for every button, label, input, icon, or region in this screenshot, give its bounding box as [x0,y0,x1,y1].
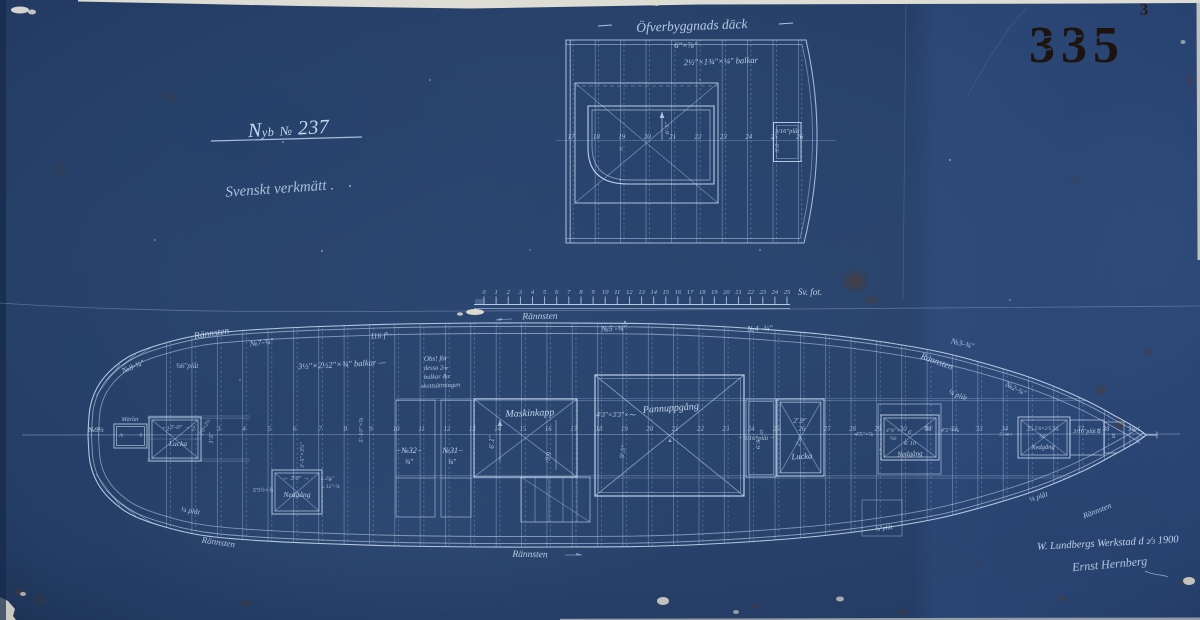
svg-text:Rännsten: Rännsten [511,550,548,561]
svg-text:22: 22 [695,133,703,141]
svg-text:3′-5″×3½″: 3′-5″×3½″ [299,442,306,469]
svg-text:¾6: ¾6 [890,436,897,442]
svg-text:20: 20 [646,426,653,433]
svg-text:Nedgång: Nedgång [896,450,923,459]
svg-text:3′.0: 3′.0 [775,144,781,154]
svg-text:¾″: ¾″ [405,458,413,466]
svg-text:17: 17 [568,133,576,141]
svg-text:23: 23 [720,133,728,141]
svg-text:19: 19 [621,426,628,433]
svg-text:25: 25 [784,289,791,296]
svg-text:▲: ▲ [667,438,673,444]
svg-text:6′-5″: 6′-5″ [664,121,671,134]
svg-text:6″×⅞″: 6″×⅞″ [674,40,698,50]
svg-text:−№32−: −№32− [396,446,422,455]
svg-text:18: 18 [699,289,706,296]
svg-text:116 fº−: 116 fº− [370,330,394,340]
svg-text:6′.10: 6′.10 [904,441,916,447]
svg-text:2′.9″: 2′.9″ [793,417,806,425]
svg-text:3: 3 [1140,0,1149,19]
svg-text:16: 16 [545,426,552,433]
svg-text:⇅6″: ⇅6″ [923,425,933,432]
svg-text:12: 12 [444,426,451,433]
svg-text:27: 27 [824,426,831,433]
svg-text:⇅: ⇅ [1110,433,1115,440]
svg-text:5: 5 [268,426,272,433]
svg-text:№5 -¾″: №5 -¾″ [600,324,628,334]
svg-text:33: 33 [975,426,983,433]
svg-text:3: 3 [216,426,221,433]
svg-text:balkar &c: balkar &c [424,373,451,381]
svg-text:4′¾″×: 4′¾″× [886,427,900,434]
svg-text:5′-10″×⅞: 5′-10″×⅞ [358,417,365,442]
svg-text:18: 18 [593,133,601,141]
svg-text:4′3″×3′3″×⁓: 4′3″×3′3″×⁓ [596,411,636,419]
svg-text:14: 14 [650,289,657,296]
svg-text:12: 12 [626,289,633,296]
svg-text:¾6″plåt: ¾6″plåt [176,362,200,370]
svg-text:skottsättningen: skottsättningen [421,382,461,390]
svg-text:◊: ◊ [140,432,143,439]
svg-text:9: 9 [369,426,373,433]
svg-text:dessa 2ne: dessa 2ne [424,364,449,372]
svg-text:4′5″×⅞: 4′5″×⅞ [941,427,960,434]
svg-text:6′: 6′ [908,430,913,436]
svg-text:− 3/16″plåt −: − 3/16″plåt − [738,435,774,442]
svg-text:6: 6 [293,426,297,433]
svg-text:← 3′0″ →: ← 3′0″ → [283,475,310,482]
svg-text:17: 17 [687,289,694,296]
svg-text:3′.6″: 3′.6″ [209,432,215,445]
svg-text:→12″-⅞: →12″-⅞ [320,484,339,490]
svg-text:2: 2 [192,426,196,433]
svg-text:19: 19 [618,133,626,141]
svg-text:¾6″: ¾6″ [1039,435,1048,440]
svg-text:¾″: ¾″ [448,458,456,466]
svg-text:5′5½×¾: 5′5½×¾ [253,487,274,494]
svg-text:23: 23 [760,289,767,296]
svg-text:13: 13 [469,426,476,433]
svg-text:4: 4 [242,426,246,433]
svg-text:18: 18 [596,426,603,433]
svg-text:4′5″×⅞: 4′5″×⅞ [855,431,874,438]
svg-text:5′-⅛×: 5′-⅛× [999,432,1013,438]
svg-text:335: 335 [1029,17,1125,74]
svg-text:21: 21 [735,289,742,296]
svg-text:A: A [118,433,123,439]
svg-text:7: 7 [318,426,322,433]
svg-text:22: 22 [697,426,704,433]
svg-text:20: 20 [723,289,730,296]
svg-text:10: 10 [602,289,609,296]
svg-text:23: 23 [722,426,729,433]
svg-text:11: 11 [614,289,620,296]
svg-text:6′.1″: 6′.1″ [488,435,496,448]
svg-text:Sv. fot.: Sv. fot. [798,287,822,297]
svg-text:Obs! för: Obs! för [424,354,448,363]
svg-text:Rännsten: Rännsten [521,312,558,323]
svg-text:Märlat: Märlat [121,417,139,423]
svg-text:38: 38 [1102,426,1110,433]
svg-text:19: 19 [711,289,718,296]
svg-text:5′6×2′5: 5′6×2′5 [1034,426,1051,432]
svg-text:№31−: №31− [442,446,464,455]
svg-text:Lucka: Lucka [168,439,188,448]
svg-text:15: 15 [520,426,527,433]
svg-text:↔2½″: ↔2½″ [320,475,335,482]
svg-text:3/16″plåt⇅: 3/16″plåt⇅ [1072,428,1101,435]
svg-text:13: 13 [638,289,645,296]
svg-text:Maskinkapp: Maskinkapp [504,407,554,420]
svg-text:← 3′-0″ →: ← 3′-0″ → [161,424,190,431]
svg-text:3: 3 [518,289,523,296]
svg-text:№4 -¾″: №4 -¾″ [746,324,774,334]
svg-text:×: × [618,144,624,154]
svg-text:Nedgång: Nedgång [1030,444,1055,452]
svg-text:3/16″plåt: 3/16″plåt [774,128,800,135]
svg-text:22: 22 [747,289,754,296]
svg-text:Nedgång: Nedgång [282,490,310,499]
svg-text:15: 15 [663,289,670,296]
svg-text:Lucka: Lucka [790,450,812,461]
svg-text:№9½: №9½ [87,426,104,434]
svg-text:24: 24 [772,289,779,296]
svg-text:11: 11 [418,426,424,433]
svg-text:1: 1 [494,289,497,296]
svg-text:16: 16 [675,289,682,296]
svg-text:8: 8 [344,426,348,433]
svg-text:14: 14 [494,426,501,433]
svg-text:24: 24 [745,133,753,141]
